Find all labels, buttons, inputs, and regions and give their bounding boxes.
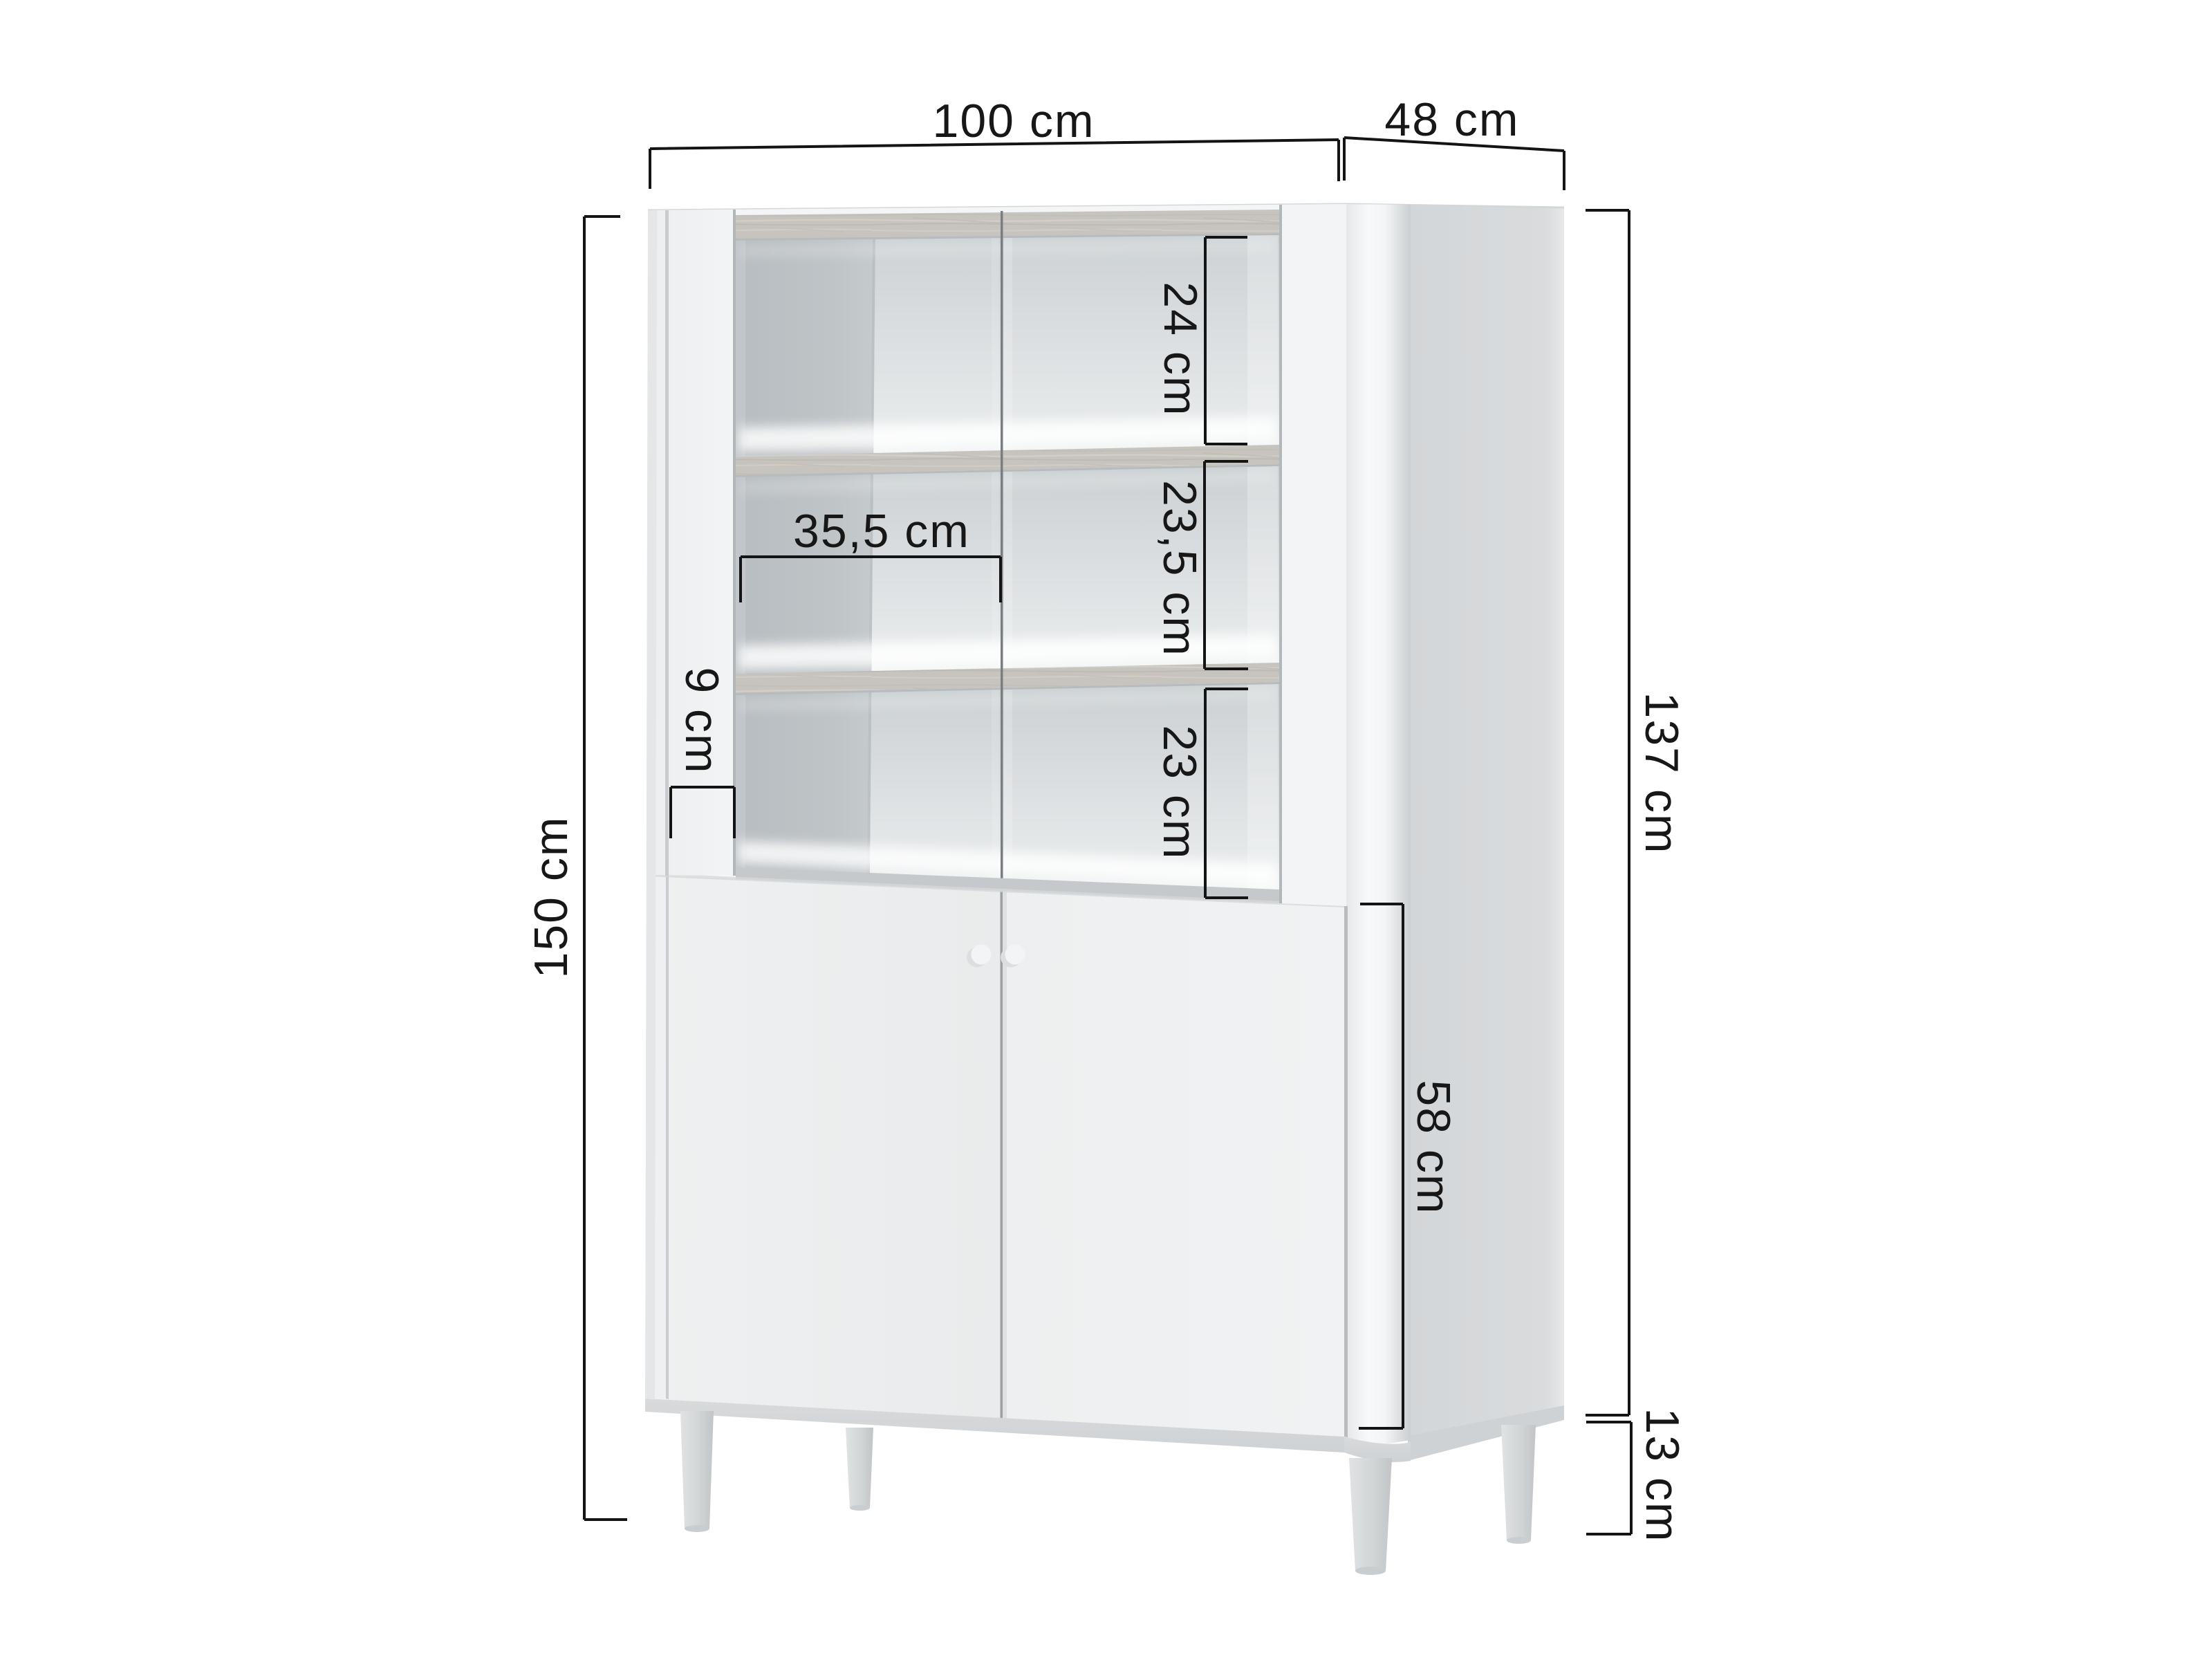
svg-text:13 cm: 13 cm [1636,1408,1689,1542]
svg-text:23 cm: 23 cm [1153,725,1206,860]
svg-text:48 cm: 48 cm [1384,93,1519,146]
svg-text:137 cm: 137 cm [1635,692,1688,855]
svg-text:35,5 cm: 35,5 cm [793,505,970,557]
svg-text:23,5 cm: 23,5 cm [1153,480,1206,657]
svg-text:58 cm: 58 cm [1407,1080,1460,1215]
svg-text:100 cm: 100 cm [933,95,1095,147]
svg-text:24 cm: 24 cm [1154,282,1207,416]
svg-text:150 cm: 150 cm [525,816,577,979]
svg-text:9 cm: 9 cm [676,667,728,774]
